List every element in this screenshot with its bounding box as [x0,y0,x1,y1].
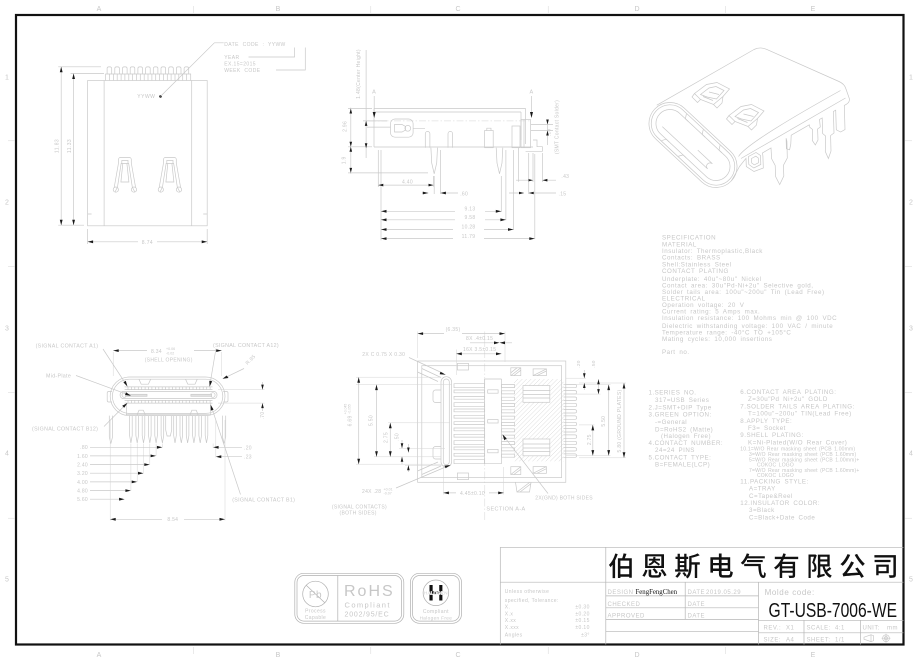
svg-text:(SIGNAL CONTACT B12): (SIGNAL CONTACT B12) [32,426,98,432]
svg-text:12.INSULATOR COLOR:: 12.INSULATOR COLOR: [740,500,820,507]
svg-text:Process: Process [305,609,326,615]
svg-text:.60: .60 [460,191,468,197]
svg-text:5.CONTACT TYPE:: 5.CONTACT TYPE: [649,454,712,461]
svg-text:3.20: 3.20 [77,471,88,477]
svg-text:2002/95/EC: 2002/95/EC [345,612,390,619]
svg-text:B=FEMALE(LCP): B=FEMALE(LCP) [655,462,710,469]
svg-text:11.PACKING STYLE:: 11.PACKING STYLE: [740,478,808,485]
svg-text:A: A [97,652,102,659]
svg-text:GT-USB-7006-WE: GT-USB-7006-WE [769,599,898,622]
svg-text:X.xxx: X.xxx [505,625,519,631]
svg-text:.23: .23 [244,455,252,461]
svg-text:Mid-Plate: Mid-Plate [46,374,71,380]
svg-text:2.40: 2.40 [77,463,88,469]
svg-text:±0.30: ±0.30 [575,605,589,611]
svg-text:(Halogen Free): (Halogen Free) [661,433,711,440]
svg-text:±0.10: ±0.10 [575,625,589,631]
svg-text:SIZE:: SIZE: [764,638,782,644]
svg-text:11.33: 11.33 [67,139,73,153]
svg-text:5: 5 [5,577,9,584]
svg-text:4.CONTACT NUMBER:: 4.CONTACT NUMBER: [649,440,724,447]
svg-text:4.45±0.10: 4.45±0.10 [460,491,485,497]
svg-text:Insulation resistance: 100 Moh: Insulation resistance: 100 Mohms min @ 1… [662,315,837,322]
svg-text:8.74: 8.74 [142,240,153,246]
svg-text:EX.15=2015: EX.15=2015 [224,61,256,67]
svg-text:WEEK CODE: WEEK CODE [224,68,260,74]
svg-text:(SMT Contact Solder): (SMT Contact Solder) [555,100,561,154]
svg-text:1: 1 [5,75,9,82]
svg-text:10.28: 10.28 [461,225,475,231]
svg-text:Angles: Angles [505,633,523,639]
svg-text:(SIGNAL CONTACT B1): (SIGNAL CONTACT B1) [232,498,295,504]
svg-text:C: C [455,6,460,13]
svg-text:.50: .50 [591,360,597,368]
svg-text:RoHS: RoHS [344,583,395,600]
svg-text:.20: .20 [576,360,582,368]
svg-text:Unless otherwise: Unless otherwise [505,589,549,595]
svg-text:2.J=SMT+DIP Type: 2.J=SMT+DIP Type [649,404,712,411]
svg-text:5.80 (GROUND PLATES): 5.80 (GROUND PLATES) [617,390,623,453]
svg-text:D: D [634,6,639,13]
svg-text:UNIT:: UNIT: [863,626,881,632]
svg-text:REV.:: REV.: [764,626,782,632]
svg-text:Compliant: Compliant [423,609,449,615]
svg-text:A: A [372,90,376,96]
svg-text:.43: .43 [561,174,569,180]
svg-text:2X C 0.75 X 0.30: 2X C 0.75 X 0.30 [362,352,405,358]
svg-text:Compliant: Compliant [345,601,391,610]
svg-text:6.CONTACT AREA PLATING:: 6.CONTACT AREA PLATING: [740,389,836,396]
svg-text:-=General: -=General [655,419,687,426]
svg-text:3.GREEN OPTION:: 3.GREEN OPTION: [649,412,712,419]
svg-text:YEAR: YEAR [224,55,239,61]
svg-text:SCALE:: SCALE: [807,626,831,632]
svg-text:1.48(Center Height): 1.48(Center Height) [356,49,362,99]
svg-text:4.00: 4.00 [77,480,88,486]
svg-text:4.80: 4.80 [77,488,88,494]
svg-text:±0.15: ±0.15 [575,618,589,624]
svg-text:HALOGEN: HALOGEN [424,591,448,596]
svg-text:A4: A4 [786,638,795,644]
svg-text:Halogen Free: Halogen Free [420,616,453,621]
svg-text:APPROVED: APPROVED [608,613,646,619]
svg-text:Capable: Capable [305,615,326,621]
svg-text:.50: .50 [395,433,401,441]
svg-text:7.SOLDER TAILS AREA PLATING:: 7.SOLDER TAILS AREA PLATING: [740,403,854,410]
svg-text:X.xx: X.xx [505,618,516,624]
svg-text:F3= Socket: F3= Socket [748,425,786,432]
svg-text:11.83: 11.83 [55,139,61,153]
svg-text:DATE: DATE [688,590,706,596]
svg-text:B: B [276,652,281,659]
svg-text:2: 2 [5,200,9,207]
svg-text:X.x: X.x [505,611,514,617]
svg-text:D: D [634,652,639,659]
svg-text:5: 5 [909,577,913,584]
svg-text:Pb: Pb [309,590,322,601]
svg-text:2019.05.29: 2019.05.29 [706,590,741,596]
svg-text:C=Tape&Reel: C=Tape&Reel [749,493,793,500]
svg-text:2: 2 [909,200,913,207]
svg-text:11.79: 11.79 [462,234,476,240]
svg-text:E: E [811,6,816,13]
svg-text:24=24 PINS: 24=24 PINS [655,447,695,454]
svg-text:2.75: 2.75 [383,432,389,443]
svg-text:1.SERIES NO.: 1.SERIES NO. [649,390,697,397]
svg-text:8X .4±0.15: 8X .4±0.15 [466,336,493,342]
svg-text:6.69: 6.69 [348,415,354,426]
svg-text:4: 4 [5,451,9,458]
svg-text:8.34: 8.34 [151,349,162,355]
svg-text:1.9: 1.9 [342,156,348,164]
svg-text:2.75: 2.75 [587,434,593,445]
svg-text:X.: X. [505,605,511,611]
svg-text:DATE CODE : YYWW: DATE CODE : YYWW [224,42,285,48]
svg-text:1/1: 1/1 [835,638,845,644]
svg-text:Mating cycles: 10,000 insertio: Mating cycles: 10,000 insertions [662,336,772,343]
svg-text:-0.07: -0.07 [384,492,392,496]
svg-text:16X 3.5±0.15: 16X 3.5±0.15 [463,347,496,353]
svg-text:3: 3 [5,326,9,333]
svg-text:CHECKED: CHECKED [608,602,641,608]
svg-text:DESIGN: DESIGN [608,590,634,596]
svg-text:A: A [97,6,102,13]
svg-text:Z=30u"Pd Ni+2u" GOLD: Z=30u"Pd Ni+2u" GOLD [748,396,828,403]
svg-text:24X .28: 24X .28 [362,489,381,495]
svg-text:mm: mm [887,626,898,632]
svg-text:.80: .80 [80,445,88,451]
svg-text:YYWW: YYWW [137,94,155,100]
svg-text:2.96: 2.96 [343,121,349,132]
svg-text:4.40: 4.40 [402,179,413,185]
svg-text:(BOTH SIDES): (BOTH SIDES) [340,511,377,517]
svg-text:CONTACT PLATING: CONTACT PLATING [662,268,729,275]
svg-text:4:1: 4:1 [835,626,845,632]
svg-text:5.60: 5.60 [77,497,88,503]
svg-text:K=Ni-Plated(W/O Rear Cover): K=Ni-Plated(W/O Rear Cover) [748,439,847,446]
svg-text:5.50: 5.50 [369,415,375,426]
svg-text:8.54: 8.54 [167,517,178,523]
svg-text:E: E [811,652,816,659]
svg-text:4: 4 [909,451,913,458]
svg-text:T=100u"~200u" TIN(Lead Free): T=100u"~200u" TIN(Lead Free) [748,411,852,418]
svg-text:.15: .15 [559,191,567,197]
svg-text:3=Black: 3=Black [749,507,775,514]
svg-text:9.13: 9.13 [465,207,476,213]
svg-text:317=USB Series: 317=USB Series [655,397,709,404]
svg-text:(SIGNAL CONTACT A12): (SIGNAL CONTACT A12) [213,343,279,349]
svg-text:(SIGNAL CONTACT A1): (SIGNAL CONTACT A1) [36,344,99,350]
svg-text:9.58: 9.58 [465,215,476,221]
svg-text:2X(GND) BOTH SIDES: 2X(GND) BOTH SIDES [535,496,593,502]
svg-text:C: C [455,652,460,659]
svg-text:-0.02: -0.02 [166,351,174,355]
svg-text:A: A [529,90,533,96]
svg-text:C=Black+Date Code: C=Black+Date Code [749,514,815,521]
svg-text:3: 3 [909,326,913,333]
svg-text:±0.20: ±0.20 [575,611,589,617]
svg-text:(SIGNAL CONTACTS): (SIGNAL CONTACTS) [332,504,387,510]
svg-text:1.60: 1.60 [77,454,88,460]
svg-text:SECTION A-A: SECTION A-A [486,506,525,512]
svg-text:.70: .70 [260,412,266,420]
svg-text:B: B [276,6,281,13]
svg-text:SHEET:: SHEET: [807,638,831,644]
svg-text:DATE: DATE [688,613,706,619]
svg-text:9.SHELL PLATING:: 9.SHELL PLATING: [740,432,803,439]
svg-text:5.50: 5.50 [601,416,607,427]
svg-text:specified, Tolerance:: specified, Tolerance: [505,598,559,604]
svg-text:±3°: ±3° [581,633,590,639]
svg-text:DATE: DATE [688,602,706,608]
svg-text:8.APPLY TYPE:: 8.APPLY TYPE: [740,418,792,425]
svg-text:FengFengChen: FengFengChen [636,589,678,596]
svg-text:Part no.: Part no. [662,349,690,356]
svg-text:(6.35): (6.35) [446,327,461,333]
svg-text:A=TRAY: A=TRAY [749,486,776,493]
svg-text:Molde code:: Molde code: [765,588,815,597]
svg-text:1: 1 [909,75,913,82]
svg-text:-0.055: -0.055 [348,404,352,414]
svg-text:X1: X1 [786,626,795,632]
svg-text:(SHELL OPENING): (SHELL OPENING) [145,357,193,363]
svg-text:.20: .20 [244,445,252,451]
